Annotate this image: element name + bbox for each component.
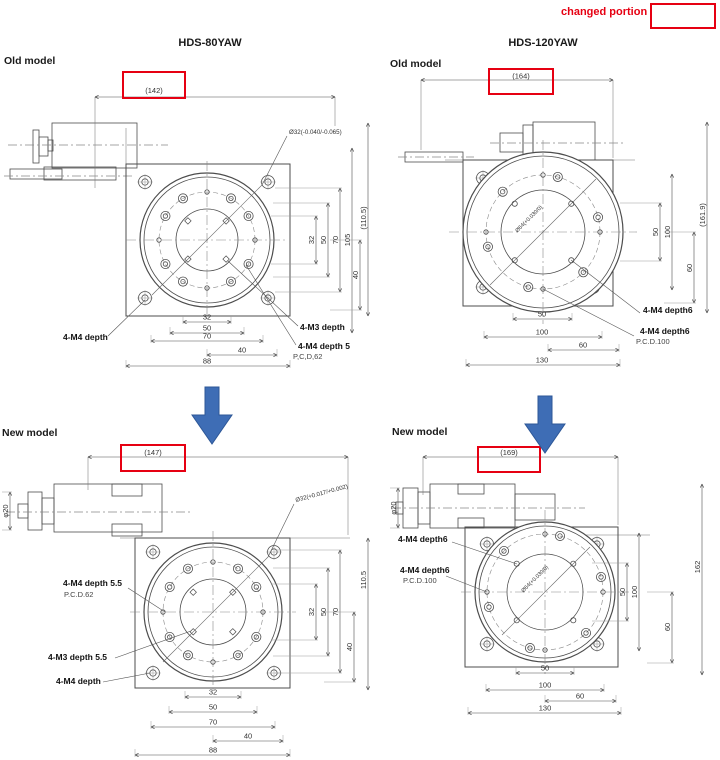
callout-pcd: P.C.D.100: [636, 337, 670, 346]
column-title-hds120: HDS-120YAW: [488, 37, 598, 49]
old-model-label-hds80: Old model: [4, 55, 55, 67]
dimension-label: (164): [512, 72, 530, 81]
drawing-hds120-old: 5010060(161.9)(164)50100601304-M4 depth6…: [390, 68, 720, 388]
dimension-label: 88: [209, 746, 217, 755]
dimension-label: 100: [539, 681, 552, 690]
callout-4-m4-depth55: 4-M4 depth 5.5: [63, 578, 122, 588]
dimension-label: 40: [345, 643, 354, 651]
drawing-rect: [39, 137, 48, 156]
dimension-label: 50: [209, 703, 217, 712]
drawing-rect: [28, 492, 42, 530]
down-arrow-icon: [192, 387, 232, 444]
drawing-rect: [54, 484, 162, 532]
dimension-label: (169): [500, 448, 518, 457]
dimension-label: 60: [685, 264, 694, 272]
dimension-label: 32: [307, 236, 316, 244]
dimension-label: 70: [209, 718, 217, 727]
callout-4-m4-depth5: 4-M4 depth 5: [298, 341, 350, 351]
callout-4-m4-depth: 4-M4 depth: [56, 676, 101, 686]
dimension-label: 40: [244, 732, 252, 741]
drawing-rect: [42, 498, 54, 524]
callout-4-m4-depth6: 4-M4 depth6: [400, 565, 450, 575]
callout-4-m4-depth6: 4-M4 depth6: [640, 326, 690, 336]
drawing-rect: [10, 169, 62, 179]
down-arrow-icon: [525, 396, 565, 453]
dimension-label: 40: [238, 346, 246, 355]
drawing-rect: [52, 123, 137, 168]
drawing-polyline: [103, 673, 150, 682]
drawing-hds80-old: 32507010540(110.5)(142)32507040884-M4 de…: [0, 68, 370, 388]
callout-pcd: P.C.D.62: [64, 590, 93, 599]
dimension-label: 32: [209, 688, 217, 697]
dimension-label: (147): [144, 448, 162, 457]
column-title-hds80: HDS-80YAW: [155, 37, 265, 49]
dimension-label: φ20: [389, 501, 398, 514]
dimension-label: 88: [203, 357, 211, 366]
drawing-hds80-new: φ2032507040110.5(147)32507040884-M4 dept…: [0, 440, 380, 760]
dimension-label: 110.5: [359, 571, 368, 589]
dimension-label: 60: [663, 623, 672, 631]
dimension-label: 40: [351, 271, 360, 279]
bore-callout: Ø32(-0.040/-0.065): [289, 129, 342, 136]
dimension-label: 100: [536, 328, 549, 337]
dimension-label: 50: [541, 664, 549, 673]
dimension-label: 130: [539, 704, 552, 713]
dimension-label: 100: [630, 586, 639, 599]
dimension-label: 50: [618, 588, 627, 596]
callout-4-m3-depth55: 4-M3 depth 5.5: [48, 652, 107, 662]
dimension-label: (142): [145, 86, 163, 95]
callout-pcd: P.C.D.100: [403, 576, 437, 585]
changed-portion-legend-box: [650, 3, 716, 29]
callout-4-m4-depth6: 4-M4 depth6: [643, 305, 693, 315]
dimension-label: 50: [319, 236, 328, 244]
dimension-label: 32: [203, 313, 211, 322]
dimension-label: 162: [693, 561, 702, 574]
drawing-polyline: [262, 136, 287, 185]
drawing-rect: [515, 494, 555, 520]
dimension-label: φ20: [1, 504, 10, 517]
catalog-comparison-page: changed portion HDS-80YAW HDS-120YAW Old…: [0, 0, 720, 760]
changed-portion-label: changed portion: [561, 6, 647, 18]
callout-4-m4-depth6: 4-M4 depth6: [398, 534, 448, 544]
dimension-label: 70: [203, 332, 211, 341]
drawing-rect: [458, 484, 484, 494]
dimension-label: 32: [307, 608, 316, 616]
drawing-rect: [33, 130, 39, 163]
drawing-rect: [18, 504, 28, 518]
dimension-label: (110.5): [359, 206, 368, 230]
drawing-hds120-new: φ205010060162(169)50100601304-M4 depth64…: [390, 440, 720, 760]
new-model-label-hds120: New model: [392, 426, 447, 438]
old-to-new-arrow-hds120: [517, 396, 573, 454]
dimension-label: (161.9): [698, 203, 707, 227]
dimension-label: 50: [538, 310, 546, 319]
dimension-label: 60: [579, 341, 587, 350]
old-to-new-arrow-hds80: [184, 387, 240, 445]
callout-4-m4-depth: 4-M4 depth: [63, 332, 108, 342]
dimension-label: 60: [576, 692, 584, 701]
callout-4-m3-depth: 4-M3 depth: [300, 322, 345, 332]
drawing-rect: [112, 524, 142, 536]
dimension-label: 50: [651, 228, 660, 236]
callout-pcd: P,C,D,62: [293, 352, 322, 361]
bore-callout: Ø32(+0.017/+0.002): [295, 484, 349, 504]
new-model-label-hds80: New model: [2, 427, 57, 439]
drawing-rect: [430, 484, 515, 528]
drawing-rect: [112, 484, 142, 496]
drawing-rect: [500, 133, 523, 152]
dimension-label: 130: [536, 356, 549, 365]
